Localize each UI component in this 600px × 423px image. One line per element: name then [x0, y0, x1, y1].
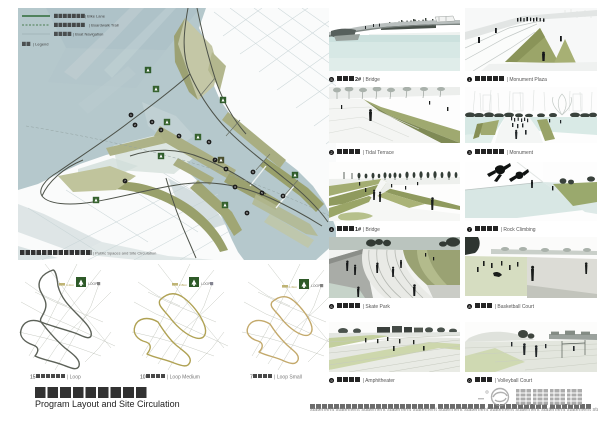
svg-text:| Bike Lane: | Bike Lane [85, 14, 106, 19]
svg-text:LOOP: LOOP [311, 284, 321, 288]
svg-text:| Legend: | Legend [33, 42, 49, 47]
svg-text:1.6km: 1.6km [289, 285, 298, 289]
svg-text:LOOP: LOOP [88, 282, 98, 286]
svg-text:| Boat Navigation: | Boat Navigation [73, 32, 103, 37]
svg-text:4.2km: 4.2km [66, 283, 75, 287]
svg-text:LOOP: LOOP [201, 282, 211, 286]
svg-text:| Boardwalk Trail: | Boardwalk Trail [89, 23, 119, 28]
svg-text:2.8km: 2.8km [179, 283, 188, 287]
